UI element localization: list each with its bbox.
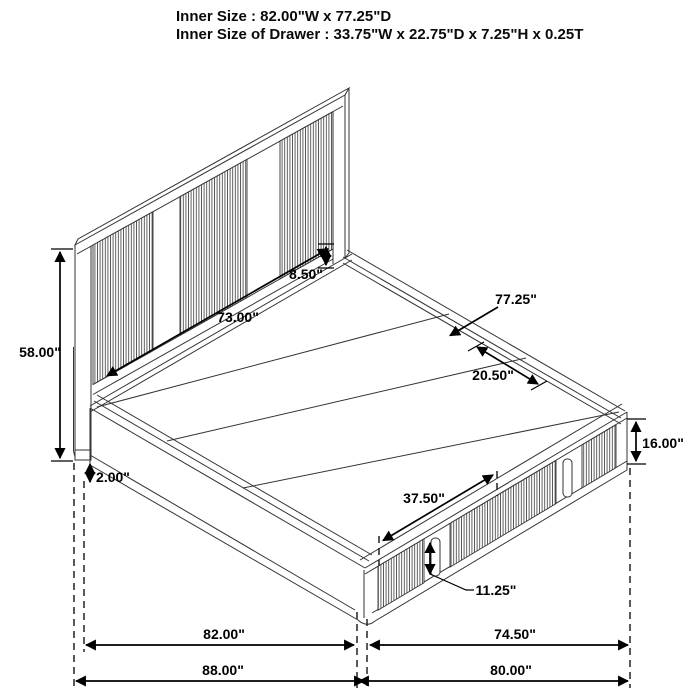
title-inner-size: Inner Size : 82.00"W x 77.25"D (176, 8, 583, 26)
bed-dimension-diagram: Inner Size : 82.00"W x 77.25"D Inner Siz… (0, 0, 700, 700)
title-block: Inner Size : 82.00"W x 77.25"D Inner Siz… (176, 8, 583, 44)
bed-line-drawing (0, 0, 700, 700)
title-drawer-size: Inner Size of Drawer : 33.75"W x 22.75"D… (176, 26, 583, 44)
dim-headboard-inner-width: 73.00" (217, 309, 259, 325)
drawer-handle (431, 538, 440, 576)
dim-overall-depth: 80.00" (490, 662, 532, 678)
dim-drawer-face-height: 11.25" (476, 582, 517, 598)
bed-platform (90, 250, 625, 624)
drawer-handle (563, 459, 572, 497)
dim-headboard-height: 58.00" (19, 344, 61, 360)
dim-footboard-height: 16.00" (642, 435, 684, 451)
dim-foot-clearance-depth: 20.50" (472, 367, 514, 383)
dim-drawer-section-width: 37.50" (403, 490, 445, 506)
dim-plinth-height: 2.00" (96, 469, 130, 485)
headboard-reeded-panels (93, 112, 333, 385)
dim-headboard-panel-gap: 8.50" (289, 266, 323, 282)
dim-drawer-side-depth: 74.50" (494, 626, 536, 642)
dim-overall-width: 88.00" (202, 662, 244, 678)
dim-inner-width: 82.00" (203, 626, 245, 642)
dim-platform-depth: 77.25" (495, 291, 537, 307)
